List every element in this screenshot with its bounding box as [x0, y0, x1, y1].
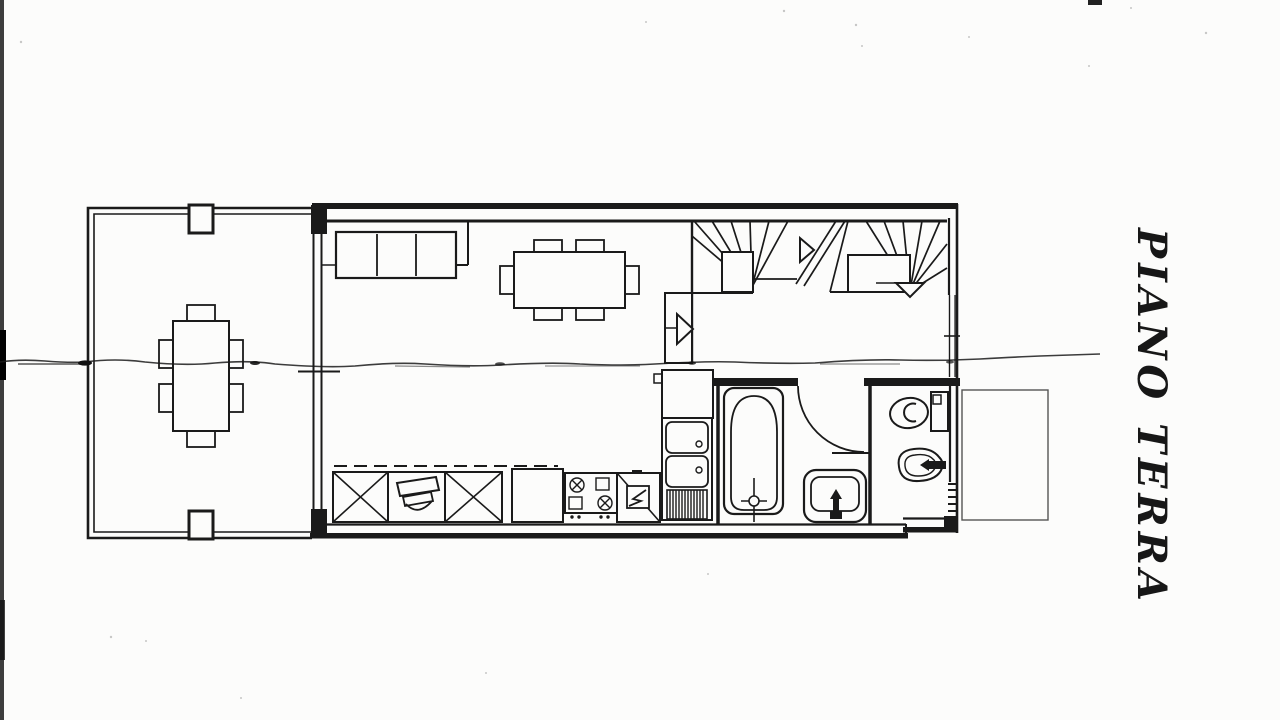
dining-chair: [625, 266, 639, 294]
dining-table: [514, 252, 625, 308]
outdoor-chair: [229, 340, 243, 368]
floor-plan-drawing: [0, 0, 1280, 720]
stair-newel-box-left: [722, 252, 753, 292]
dining-chair: [576, 240, 604, 252]
floor-title: PIANO TERRA: [1128, 228, 1175, 533]
outdoor-chair: [187, 431, 215, 447]
dining-chair: [500, 266, 514, 294]
dining-set: [500, 240, 639, 320]
terrace-pillar-top: [189, 205, 213, 233]
outdoor-chair: [159, 384, 173, 412]
scanned-floor-plan-page: PIANO TERRA: [0, 0, 1280, 720]
terrace-pillar-bottom: [189, 511, 213, 539]
dining-chair: [576, 308, 604, 320]
dining-chair: [534, 240, 562, 252]
bathtub-drain-icon: [749, 496, 759, 506]
dining-chair: [534, 308, 562, 320]
outdoor-dining-table: [173, 321, 229, 431]
outdoor-chair: [229, 384, 243, 412]
outdoor-chair: [187, 305, 215, 321]
